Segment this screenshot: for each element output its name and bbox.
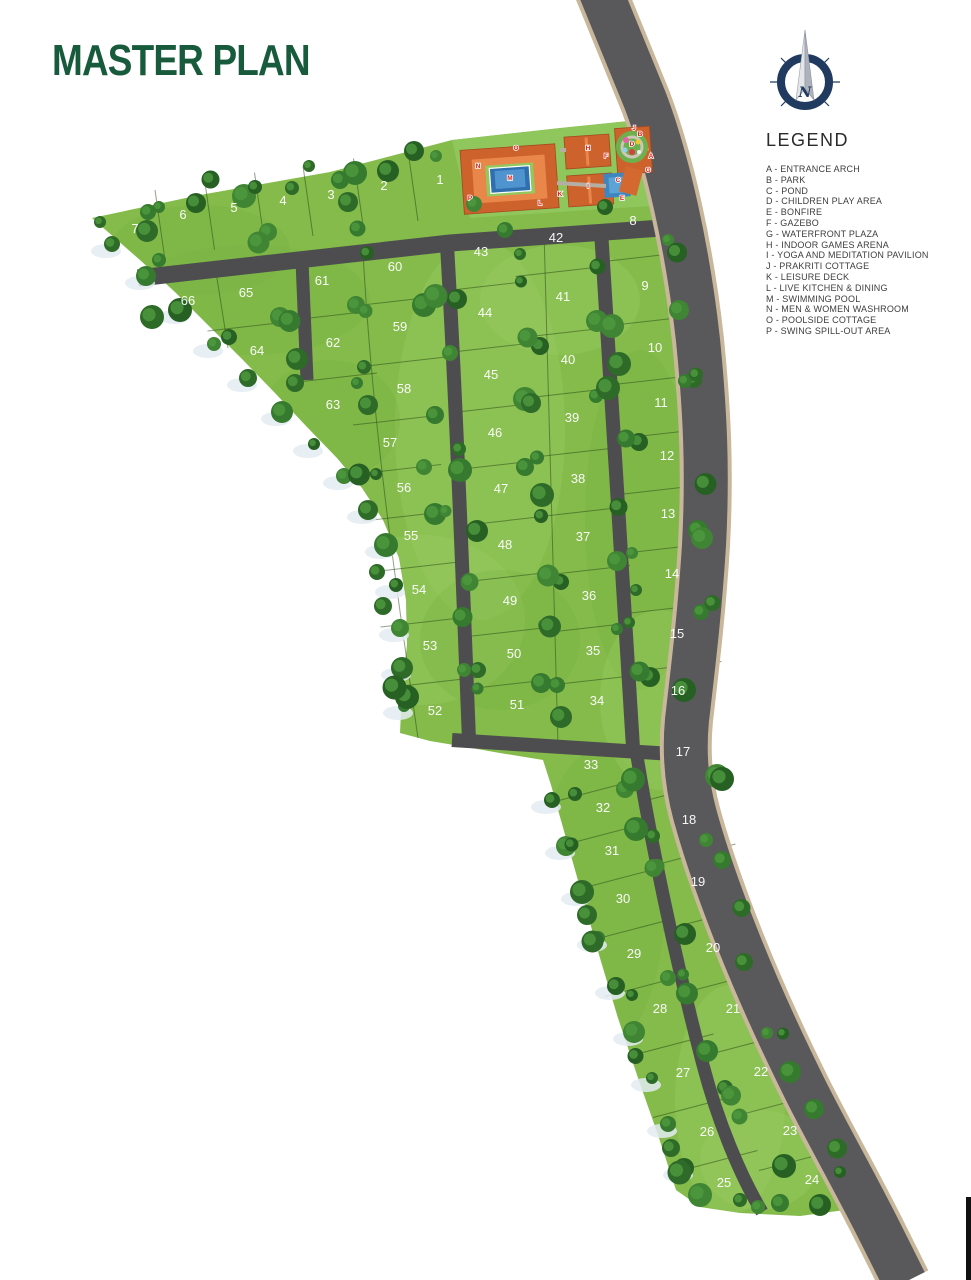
plot-label-49: 49 (503, 593, 517, 608)
plot-label-9: 9 (641, 278, 648, 293)
amenity-marker-E: E (620, 195, 625, 202)
plot-label-32: 32 (596, 800, 610, 815)
plot-label-37: 37 (576, 529, 590, 544)
plot-label-35: 35 (586, 643, 600, 658)
plot-label-50: 50 (507, 646, 521, 661)
plot-label-2: 2 (380, 178, 387, 193)
amenity-marker-H: H (586, 145, 591, 152)
plot-label-62: 62 (326, 335, 340, 350)
amenity-marker-M: M (507, 175, 512, 182)
plot-label-53: 53 (423, 638, 437, 653)
plot-label-41: 41 (556, 289, 570, 304)
plot-label-31: 31 (605, 843, 619, 858)
plot-label-26: 26 (700, 1124, 714, 1139)
plot-label-22: 22 (754, 1064, 768, 1079)
site-map-canvas: 1234567891011121314151617181920212223242… (0, 0, 971, 1280)
plot-label-66: 66 (181, 293, 195, 308)
plot-label-12: 12 (660, 448, 674, 463)
plot-label-54: 54 (412, 582, 426, 597)
amenity-marker-C: C (616, 177, 621, 184)
plot-label-33: 33 (584, 757, 598, 772)
plot-label-18: 18 (682, 812, 696, 827)
plot-label-11: 11 (654, 395, 668, 410)
plot-label-47: 47 (494, 481, 508, 496)
plot-label-20: 20 (706, 940, 720, 955)
plot-label-38: 38 (571, 471, 585, 486)
plot-label-57: 57 (383, 435, 397, 450)
amenity-marker-A: A (649, 153, 654, 160)
plot-label-52: 52 (428, 703, 442, 718)
plot-label-25: 25 (717, 1175, 731, 1190)
plot-label-4: 4 (279, 193, 286, 208)
plot-label-48: 48 (498, 537, 512, 552)
plot-label-21: 21 (726, 1001, 740, 1016)
plot-label-6: 6 (179, 207, 186, 222)
plot-label-60: 60 (388, 259, 402, 274)
plot-label-8: 8 (629, 213, 636, 228)
site-map: 1234567891011121314151617181920212223242… (0, 0, 971, 1280)
amenity-marker-G: G (645, 167, 650, 174)
plot-label-59: 59 (393, 319, 407, 334)
plot-label-3: 3 (327, 187, 334, 202)
plot-label-55: 55 (404, 528, 418, 543)
plot-label-24: 24 (805, 1172, 819, 1187)
plot-label-43: 43 (474, 244, 488, 259)
amenity-marker-I: I (587, 183, 589, 190)
plot-label-65: 65 (239, 285, 253, 300)
plot-label-10: 10 (648, 340, 662, 355)
plot-label-15: 15 (670, 626, 684, 641)
plot-label-23: 23 (783, 1123, 797, 1138)
plot-label-45: 45 (484, 367, 498, 382)
plot-label-42: 42 (549, 230, 563, 245)
amenity-marker-F: F (604, 153, 608, 160)
plot-label-19: 19 (691, 874, 705, 889)
plot-label-61: 61 (315, 273, 329, 288)
plot-label-1: 1 (436, 172, 443, 187)
plot-label-44: 44 (478, 305, 492, 320)
plot-label-51: 51 (510, 697, 524, 712)
plot-label-17: 17 (676, 744, 690, 759)
plot-label-56: 56 (397, 480, 411, 495)
amenity-marker-N: N (476, 163, 481, 170)
plot-label-46: 46 (488, 425, 502, 440)
plot-label-7: 7 (131, 221, 138, 236)
amenity-marker-K: K (558, 191, 563, 198)
plot-label-58: 58 (397, 381, 411, 396)
plot-label-63: 63 (326, 397, 340, 412)
plot-label-64: 64 (250, 343, 264, 358)
plot-label-39: 39 (565, 410, 579, 425)
plot-label-40: 40 (561, 352, 575, 367)
amenity-marker-P: P (468, 195, 473, 202)
plot-label-34: 34 (590, 693, 604, 708)
amenity-marker-O: O (513, 145, 518, 152)
plot-label-27: 27 (676, 1065, 690, 1080)
plot-label-13: 13 (661, 506, 675, 521)
plot-label-28: 28 (653, 1001, 667, 1016)
frame-edge (966, 1197, 971, 1280)
plot-label-36: 36 (582, 588, 596, 603)
amenity-marker-D: D (630, 141, 635, 148)
plot-label-14: 14 (665, 566, 679, 581)
plot-label-30: 30 (616, 891, 630, 906)
master-plan-page: MASTER PLAN N LEGEND A - ENTRANCE ARCHB … (0, 0, 971, 1280)
plot-label-16: 16 (671, 683, 685, 698)
amenity-marker-J: J (632, 125, 636, 132)
amenity-marker-L: L (538, 200, 542, 207)
plot-label-29: 29 (627, 946, 641, 961)
amenity-marker-B: B (638, 131, 643, 138)
plot-label-5: 5 (230, 200, 237, 215)
